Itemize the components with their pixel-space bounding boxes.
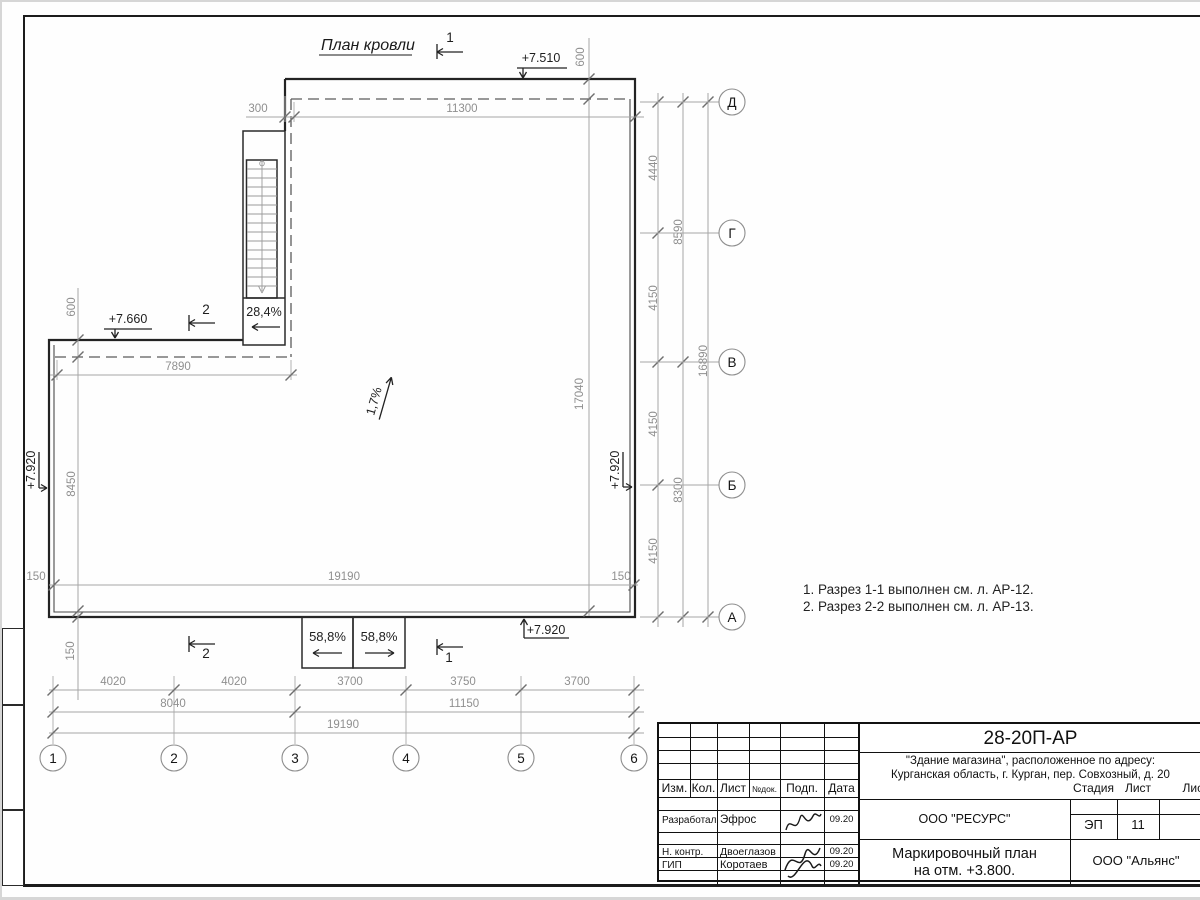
signature-developer: [786, 814, 821, 830]
axis-label-6: 6: [630, 751, 638, 766]
dim-4020-a: 4020: [100, 676, 126, 688]
dim-150-inner-left: 150: [26, 571, 45, 583]
dim-150-inner-right: 150: [611, 571, 630, 583]
axis-label-D: Д: [727, 95, 736, 110]
sheets-label: Листов: [1159, 782, 1200, 796]
sheet-number: 11: [1117, 818, 1159, 833]
dim-17040: 17040: [574, 378, 586, 410]
dim-inner-bottom: 150 19190 150: [26, 571, 639, 591]
canopy-right-slope: 58,8%: [361, 629, 398, 644]
dim-8450: 8450: [66, 471, 78, 497]
sheet-name-2: на отм. +3.800.: [859, 863, 1070, 880]
row-developer-role: Разработал: [662, 815, 717, 827]
axis-label-1: 1: [49, 751, 57, 766]
row-ncontr-role: Н. контр.: [662, 847, 717, 859]
tb-line: [659, 797, 859, 798]
project-address-1: "Здание магазина", расположенное по адре…: [859, 755, 1200, 768]
signatures: [780, 802, 824, 884]
elev-7920-left: +7.920: [24, 451, 38, 490]
dim-4440: 4440: [648, 155, 660, 181]
note-1: 1. Разрез 1-1 выполнен см. л. АР-12.: [803, 582, 1034, 597]
building-outline: [49, 79, 635, 617]
stage-value: ЭП: [1070, 818, 1117, 833]
dim-16890: 16890: [698, 345, 710, 377]
sheet-name-1: Маркировочный план: [859, 846, 1070, 863]
dim-8040: 8040: [160, 698, 186, 710]
dim-3700-a: 3700: [337, 676, 363, 688]
stair-shaft: 28,4%: [243, 131, 285, 345]
tb-line: [858, 752, 1200, 753]
ramp-slope-label: 28,4%: [246, 305, 281, 319]
designer-org: ООО "РЕСУРС": [859, 812, 1070, 826]
tb-line: [717, 724, 718, 884]
elev-7510: +7.510: [522, 51, 561, 65]
row-gip-name: Коротаев: [720, 859, 780, 872]
axis-label-2: 2: [170, 751, 178, 766]
elev-7660: +7.660: [109, 312, 148, 326]
col-list: Лист: [717, 782, 749, 796]
canopy-left-slope: 58,8%: [309, 629, 346, 644]
tb-line: [1070, 814, 1200, 815]
axis-label-G: Г: [728, 226, 736, 241]
axis-label-A: А: [727, 610, 736, 625]
dim-600-top: 600: [575, 47, 587, 66]
col-izm: Изм.: [659, 782, 690, 796]
dim-4150-a: 4150: [648, 285, 660, 311]
row-developer-date: 09.20: [824, 815, 859, 826]
section-1-top: 1: [446, 30, 454, 45]
row-developer-name: Эфрос: [720, 814, 780, 827]
col-kol: Кол.: [690, 782, 717, 796]
dim-left: 600 8450 150 7890: [50, 288, 297, 700]
row-ncontr-date: 09.20: [824, 847, 859, 858]
dim-19190-inner: 19190: [328, 571, 360, 583]
stage-label: Стадия: [1070, 782, 1117, 796]
tb-line: [659, 810, 859, 811]
axes-bottom: 1 2 3 4 5 6: [40, 745, 647, 771]
plan-title: План кровли: [321, 37, 415, 54]
canopy-right-arrow: [365, 650, 394, 657]
drawing-sheet: План кровли: [0, 0, 1200, 900]
tb-line: [659, 763, 859, 764]
dim-600-wing: 600: [66, 297, 78, 316]
dim-right: 4440 4150 4150 4150 8590 8300 16890: [648, 93, 714, 627]
section-2-top: 2: [202, 302, 210, 317]
dim-19190: 19190: [327, 719, 359, 731]
dim-7890: 7890: [165, 361, 191, 373]
canopy-left-arrow: [313, 650, 342, 657]
dim-8590: 8590: [673, 219, 685, 245]
dim-8300: 8300: [673, 477, 685, 503]
note-2: 2. Разрез 2-2 выполнен см. л. АР-13.: [803, 599, 1034, 614]
col-ndok: №док.: [749, 785, 780, 795]
doc-number: 28-20П-АР: [859, 728, 1200, 750]
dim-4150-c: 4150: [648, 538, 660, 564]
axis-label-V: В: [727, 355, 736, 370]
section-1-bottom: 1: [445, 650, 453, 665]
dim-150-left-bottom: 150: [65, 641, 77, 660]
row-gip-role: ГИП: [662, 860, 717, 872]
dim-4150-b: 4150: [648, 411, 660, 437]
dim-11150: 11150: [449, 698, 479, 710]
axis-label-B: Б: [728, 478, 737, 493]
title-block: 28-20П-АР "Здание магазина", расположенн…: [657, 722, 1200, 882]
row-ncontr-name: Двоеглазов: [720, 846, 780, 858]
sheet-label: Лист: [1117, 782, 1159, 796]
dim-3700-b: 3700: [564, 676, 590, 688]
dim-4020-b: 4020: [221, 676, 247, 688]
row-gip-date: 09.20: [824, 860, 859, 871]
tb-line: [659, 750, 859, 751]
elevation-marks: +7.510 +7.660 +7.920 +7.920 +7.920: [24, 51, 632, 638]
col-data: Дата: [824, 782, 859, 796]
elev-7920-right: +7.920: [608, 451, 622, 490]
dim-bottom: 4020 4020 3700 3750 3700 8040 11150 1919…: [48, 676, 645, 744]
section-marks: 1 2 1 2: [189, 30, 463, 665]
col-podp: Подп.: [780, 782, 824, 796]
axis-label-4: 4: [402, 751, 410, 766]
elev-7920-bottom: +7.920: [527, 623, 566, 637]
dim-3750: 3750: [450, 676, 476, 688]
tb-line: [659, 832, 859, 833]
dim-11300: 11300: [446, 103, 477, 115]
dim-top: 300 11300 600 17040: [246, 38, 644, 617]
tb-line: [858, 839, 1200, 840]
signature-ncontr-gip: [785, 848, 821, 877]
client-org: ООО "Альянс": [1070, 854, 1200, 869]
ramp-slope-arrow: [252, 324, 280, 331]
tb-line: [1159, 799, 1160, 839]
tb-line: [1070, 799, 1071, 884]
dim-300: 300: [248, 103, 267, 115]
axis-label-5: 5: [517, 751, 525, 766]
roof-slope-arrow: 1,7%: [363, 373, 395, 421]
notes: 1. Разрез 1-1 выполнен см. л. АР-12. 2. …: [803, 582, 1034, 614]
section-2-bottom: 2: [202, 646, 210, 661]
tb-line: [659, 737, 859, 738]
tb-line: [858, 799, 1200, 800]
canopy-boxes: 58,8% 58,8%: [302, 617, 405, 668]
axis-label-3: 3: [291, 751, 299, 766]
